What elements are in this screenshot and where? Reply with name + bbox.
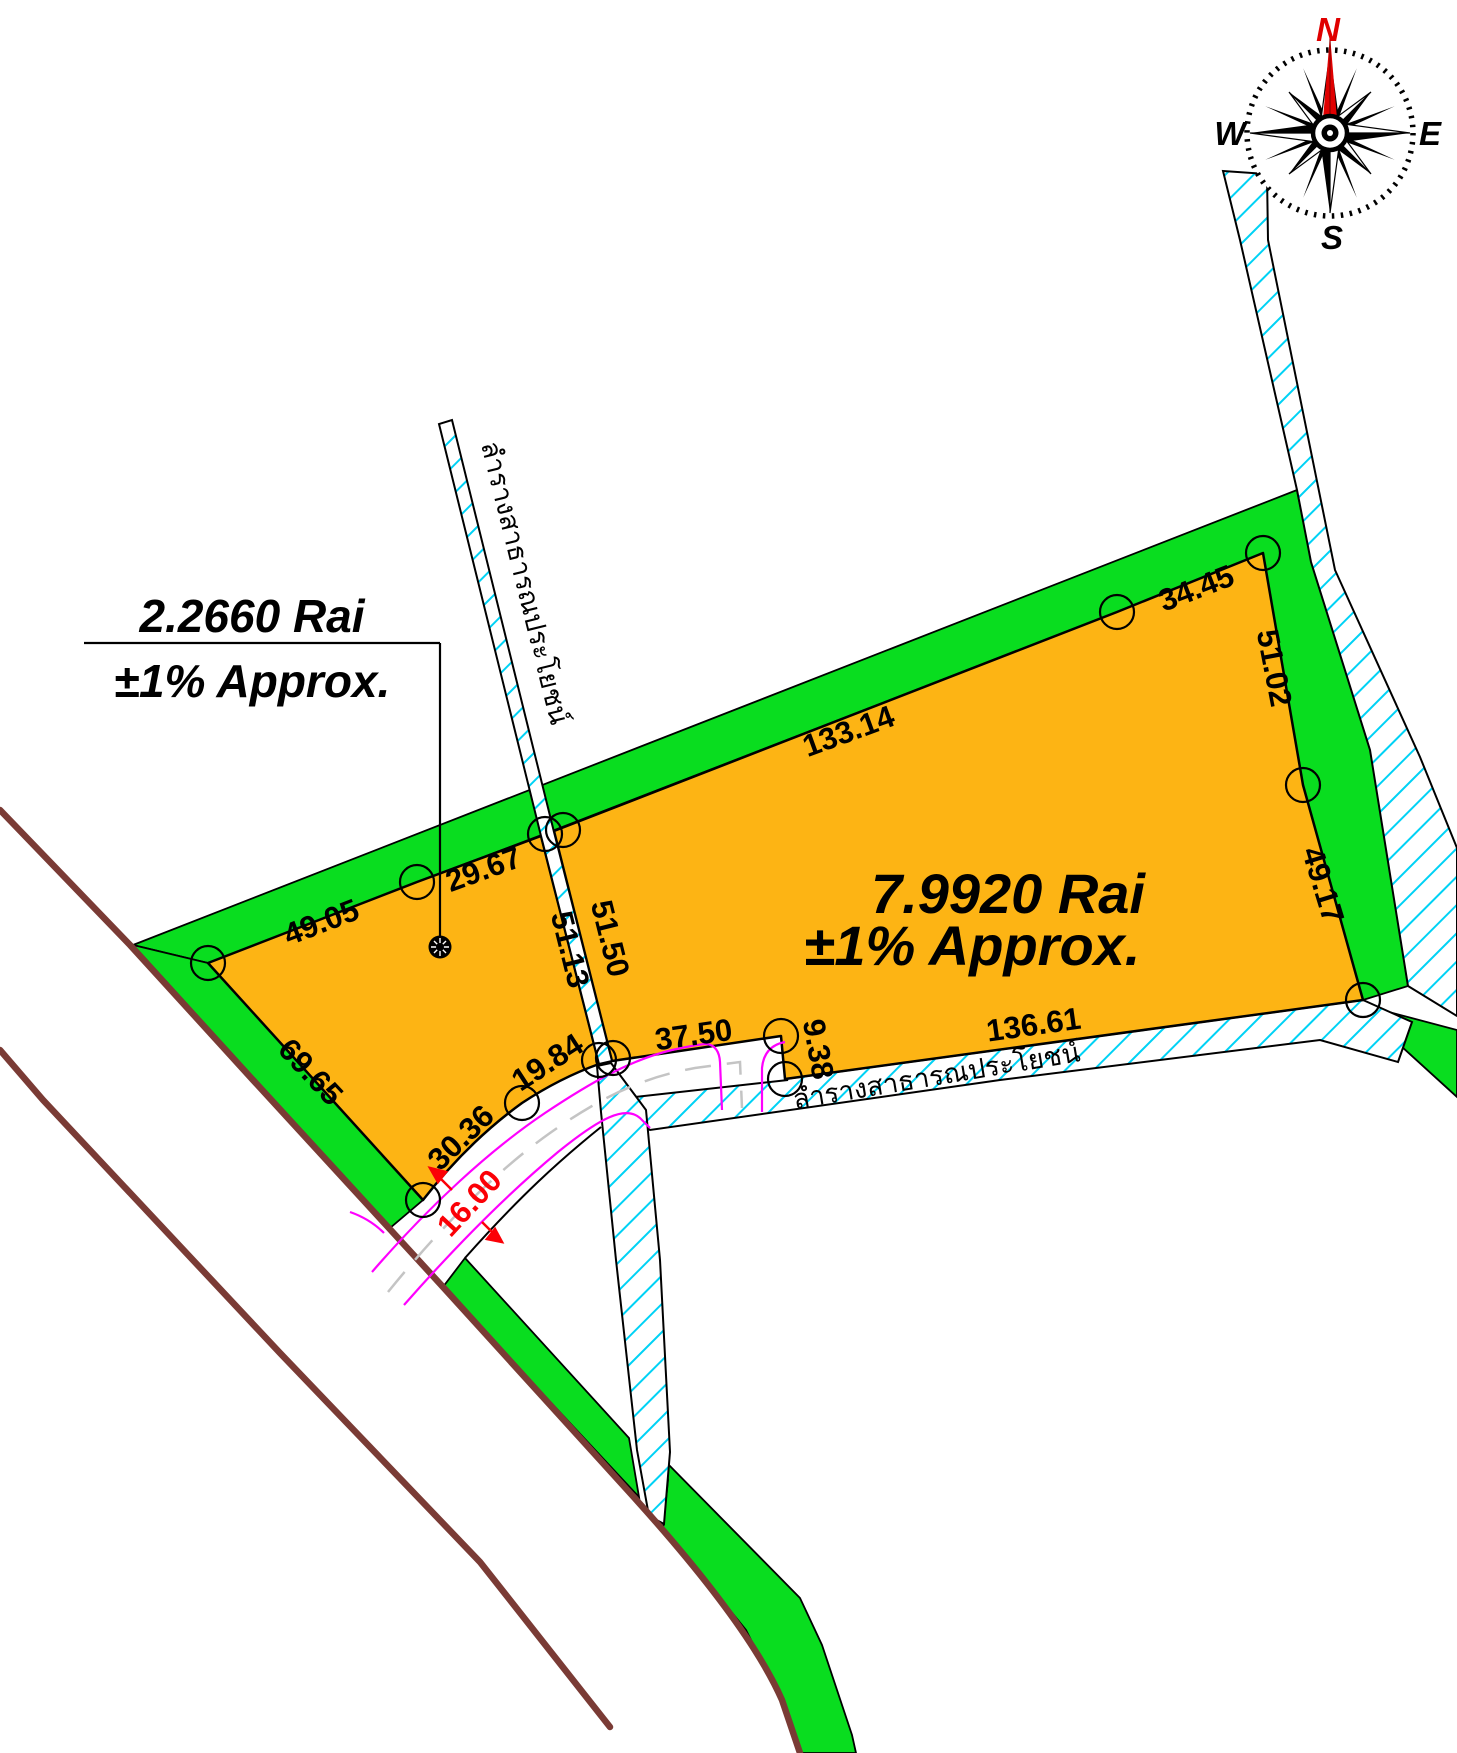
small-parcel-tolerance-label: ±1% Approx. bbox=[114, 655, 391, 707]
survey-map-page: 2.2660 Rai ±1% Approx. 7.9920 Rai ±1% Ap… bbox=[0, 0, 1457, 1753]
green-strip-bottom-east bbox=[663, 1462, 856, 1753]
compass-label-east: E bbox=[1419, 115, 1442, 152]
compass-label-west: W bbox=[1214, 115, 1248, 152]
survey-map: 2.2660 Rai ±1% Approx. 7.9920 Rai ±1% Ap… bbox=[0, 0, 1457, 1753]
road-width-dimension: 16.00 bbox=[430, 1163, 509, 1244]
small-parcel-area-label: 2.2660 Rai bbox=[138, 590, 365, 642]
green-strip-bottom-west bbox=[443, 1258, 639, 1497]
road-line-southwest bbox=[0, 1050, 610, 1727]
big-parcel-tolerance-label: ±1% Approx. bbox=[804, 914, 1141, 977]
well-marker-icon bbox=[429, 936, 452, 959]
compass-label-north: N bbox=[1316, 11, 1341, 48]
compass-label-south: S bbox=[1321, 219, 1343, 256]
